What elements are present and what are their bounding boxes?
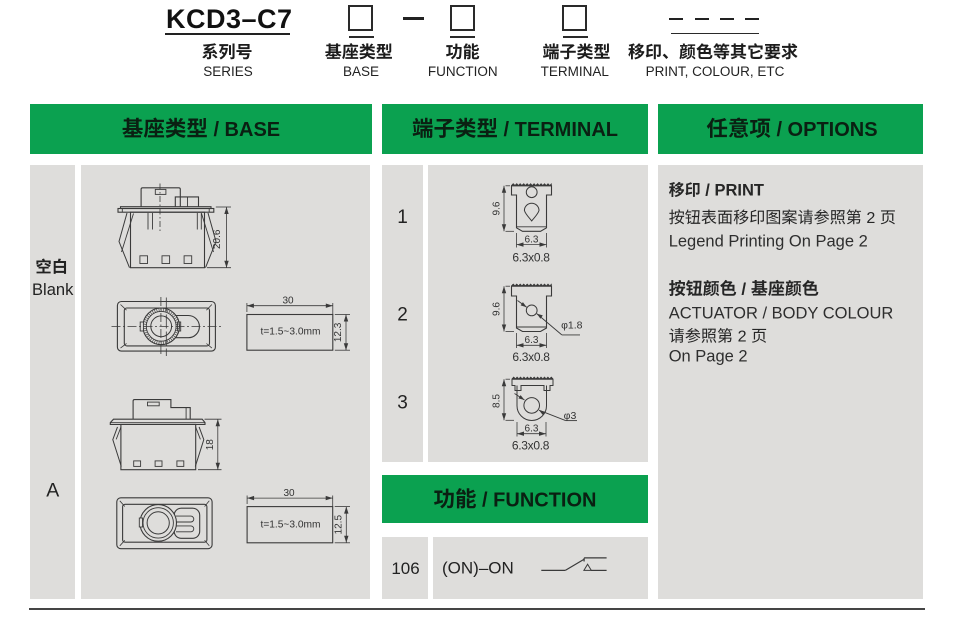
svg-text:6.3: 6.3 [525, 424, 539, 435]
svg-text:2: 2 [866, 209, 875, 227]
svg-text:FUNCTION: FUNCTION [428, 64, 498, 79]
svg-text:Blank: Blank [32, 281, 74, 299]
svg-text:2: 2 [397, 305, 408, 326]
svg-text:(ON)–ON: (ON)–ON [442, 559, 514, 578]
svg-text:/ OPTIONS: / OPTIONS [771, 119, 878, 141]
svg-text:6.3x0.8: 6.3x0.8 [512, 250, 550, 264]
svg-text:On Page 2: On Page 2 [669, 348, 748, 366]
svg-text:30: 30 [283, 488, 295, 499]
svg-text:t=1.5~3.0mm: t=1.5~3.0mm [260, 519, 320, 530]
svg-text:12.5: 12.5 [333, 515, 344, 535]
svg-text:/ PRINT: / PRINT [701, 182, 764, 200]
svg-text:Legend Printing On Page 2: Legend Printing On Page 2 [669, 233, 868, 251]
svg-text:2: 2 [738, 328, 747, 346]
svg-text:SERIES: SERIES [203, 64, 253, 79]
svg-text:6.3: 6.3 [525, 235, 539, 246]
svg-text:φ3: φ3 [564, 410, 577, 422]
svg-text:/ BASE: / BASE [208, 119, 280, 141]
svg-text:6.3x0.8: 6.3x0.8 [512, 439, 550, 453]
svg-text:1: 1 [397, 207, 408, 228]
svg-text:t=1.5~3.0mm: t=1.5~3.0mm [260, 327, 320, 338]
svg-text:ACTUATOR / BODY COLOUR: ACTUATOR / BODY COLOUR [669, 305, 894, 323]
svg-text:/: / [737, 280, 751, 299]
svg-text:12.3: 12.3 [333, 322, 344, 342]
svg-text:TERMINAL: TERMINAL [541, 64, 610, 79]
svg-text:30: 30 [282, 295, 294, 306]
svg-text:106: 106 [391, 559, 419, 578]
svg-text:3: 3 [397, 393, 408, 414]
svg-text:20.6: 20.6 [212, 229, 223, 249]
svg-text:φ1.8: φ1.8 [561, 319, 583, 331]
svg-text:/ FUNCTION: / FUNCTION [477, 490, 597, 512]
svg-text:PRINT, COLOUR, ETC: PRINT, COLOUR, ETC [646, 64, 785, 79]
svg-text:6.3x0.8: 6.3x0.8 [512, 350, 550, 364]
svg-text:9.6: 9.6 [492, 201, 503, 215]
svg-text:9.6: 9.6 [492, 302, 503, 316]
svg-text:6.3: 6.3 [525, 335, 539, 346]
svg-text:8.5: 8.5 [492, 394, 503, 408]
svg-text:A: A [46, 480, 59, 502]
svg-text:/ TERMINAL: / TERMINAL [498, 119, 618, 141]
svg-text:BASE: BASE [343, 64, 379, 79]
svg-text:18: 18 [205, 439, 216, 451]
